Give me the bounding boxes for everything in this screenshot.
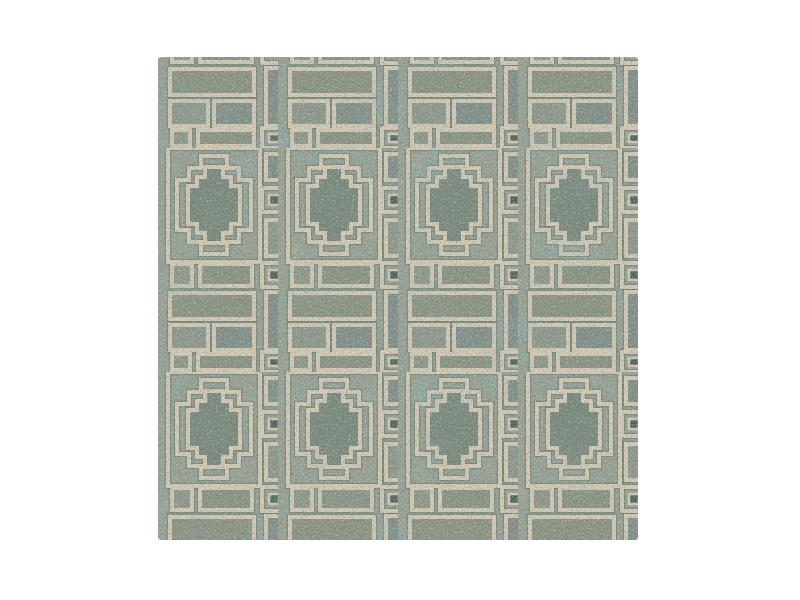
rug-product-photo (158, 57, 638, 540)
rug-pattern-graphic (158, 57, 638, 540)
page-background (0, 0, 800, 600)
rug-light-speckle (158, 57, 638, 540)
